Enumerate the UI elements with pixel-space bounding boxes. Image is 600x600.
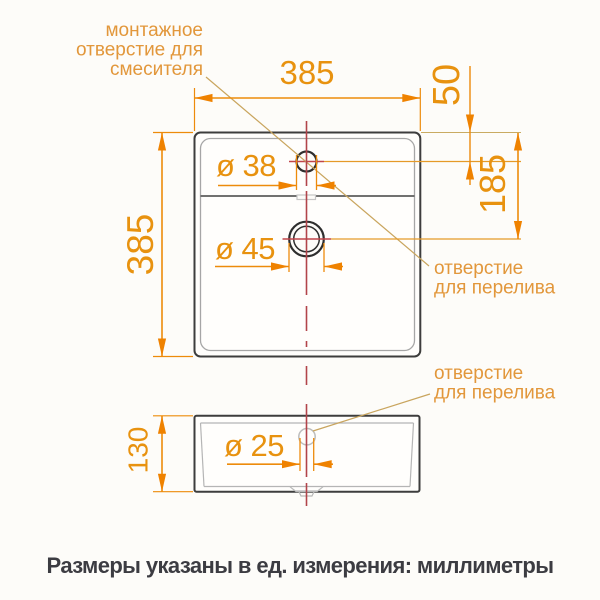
svg-text:отверстие для: отверстие для — [76, 40, 203, 61]
svg-text:для перелива: для перелива — [434, 383, 556, 404]
svg-text:385: 385 — [120, 214, 161, 276]
svg-text:монтажное: монтажное — [105, 20, 203, 41]
svg-text:отверстие: отверстие — [434, 258, 523, 279]
svg-text:ø 25: ø 25 — [224, 428, 284, 463]
svg-text:385: 385 — [279, 54, 334, 91]
svg-text:смесителя: смесителя — [110, 59, 203, 80]
svg-text:185: 185 — [472, 154, 513, 214]
svg-text:130: 130 — [123, 427, 154, 474]
svg-text:ø 45: ø 45 — [215, 231, 275, 266]
svg-text:50: 50 — [426, 64, 468, 106]
svg-text:ø 38: ø 38 — [216, 148, 276, 183]
svg-text:Размеры указаны в ед. измерени: Размеры указаны в ед. измерения: миллиме… — [47, 553, 554, 578]
svg-text:для перелива: для перелива — [434, 278, 556, 299]
svg-text:отверстие: отверстие — [434, 363, 523, 384]
